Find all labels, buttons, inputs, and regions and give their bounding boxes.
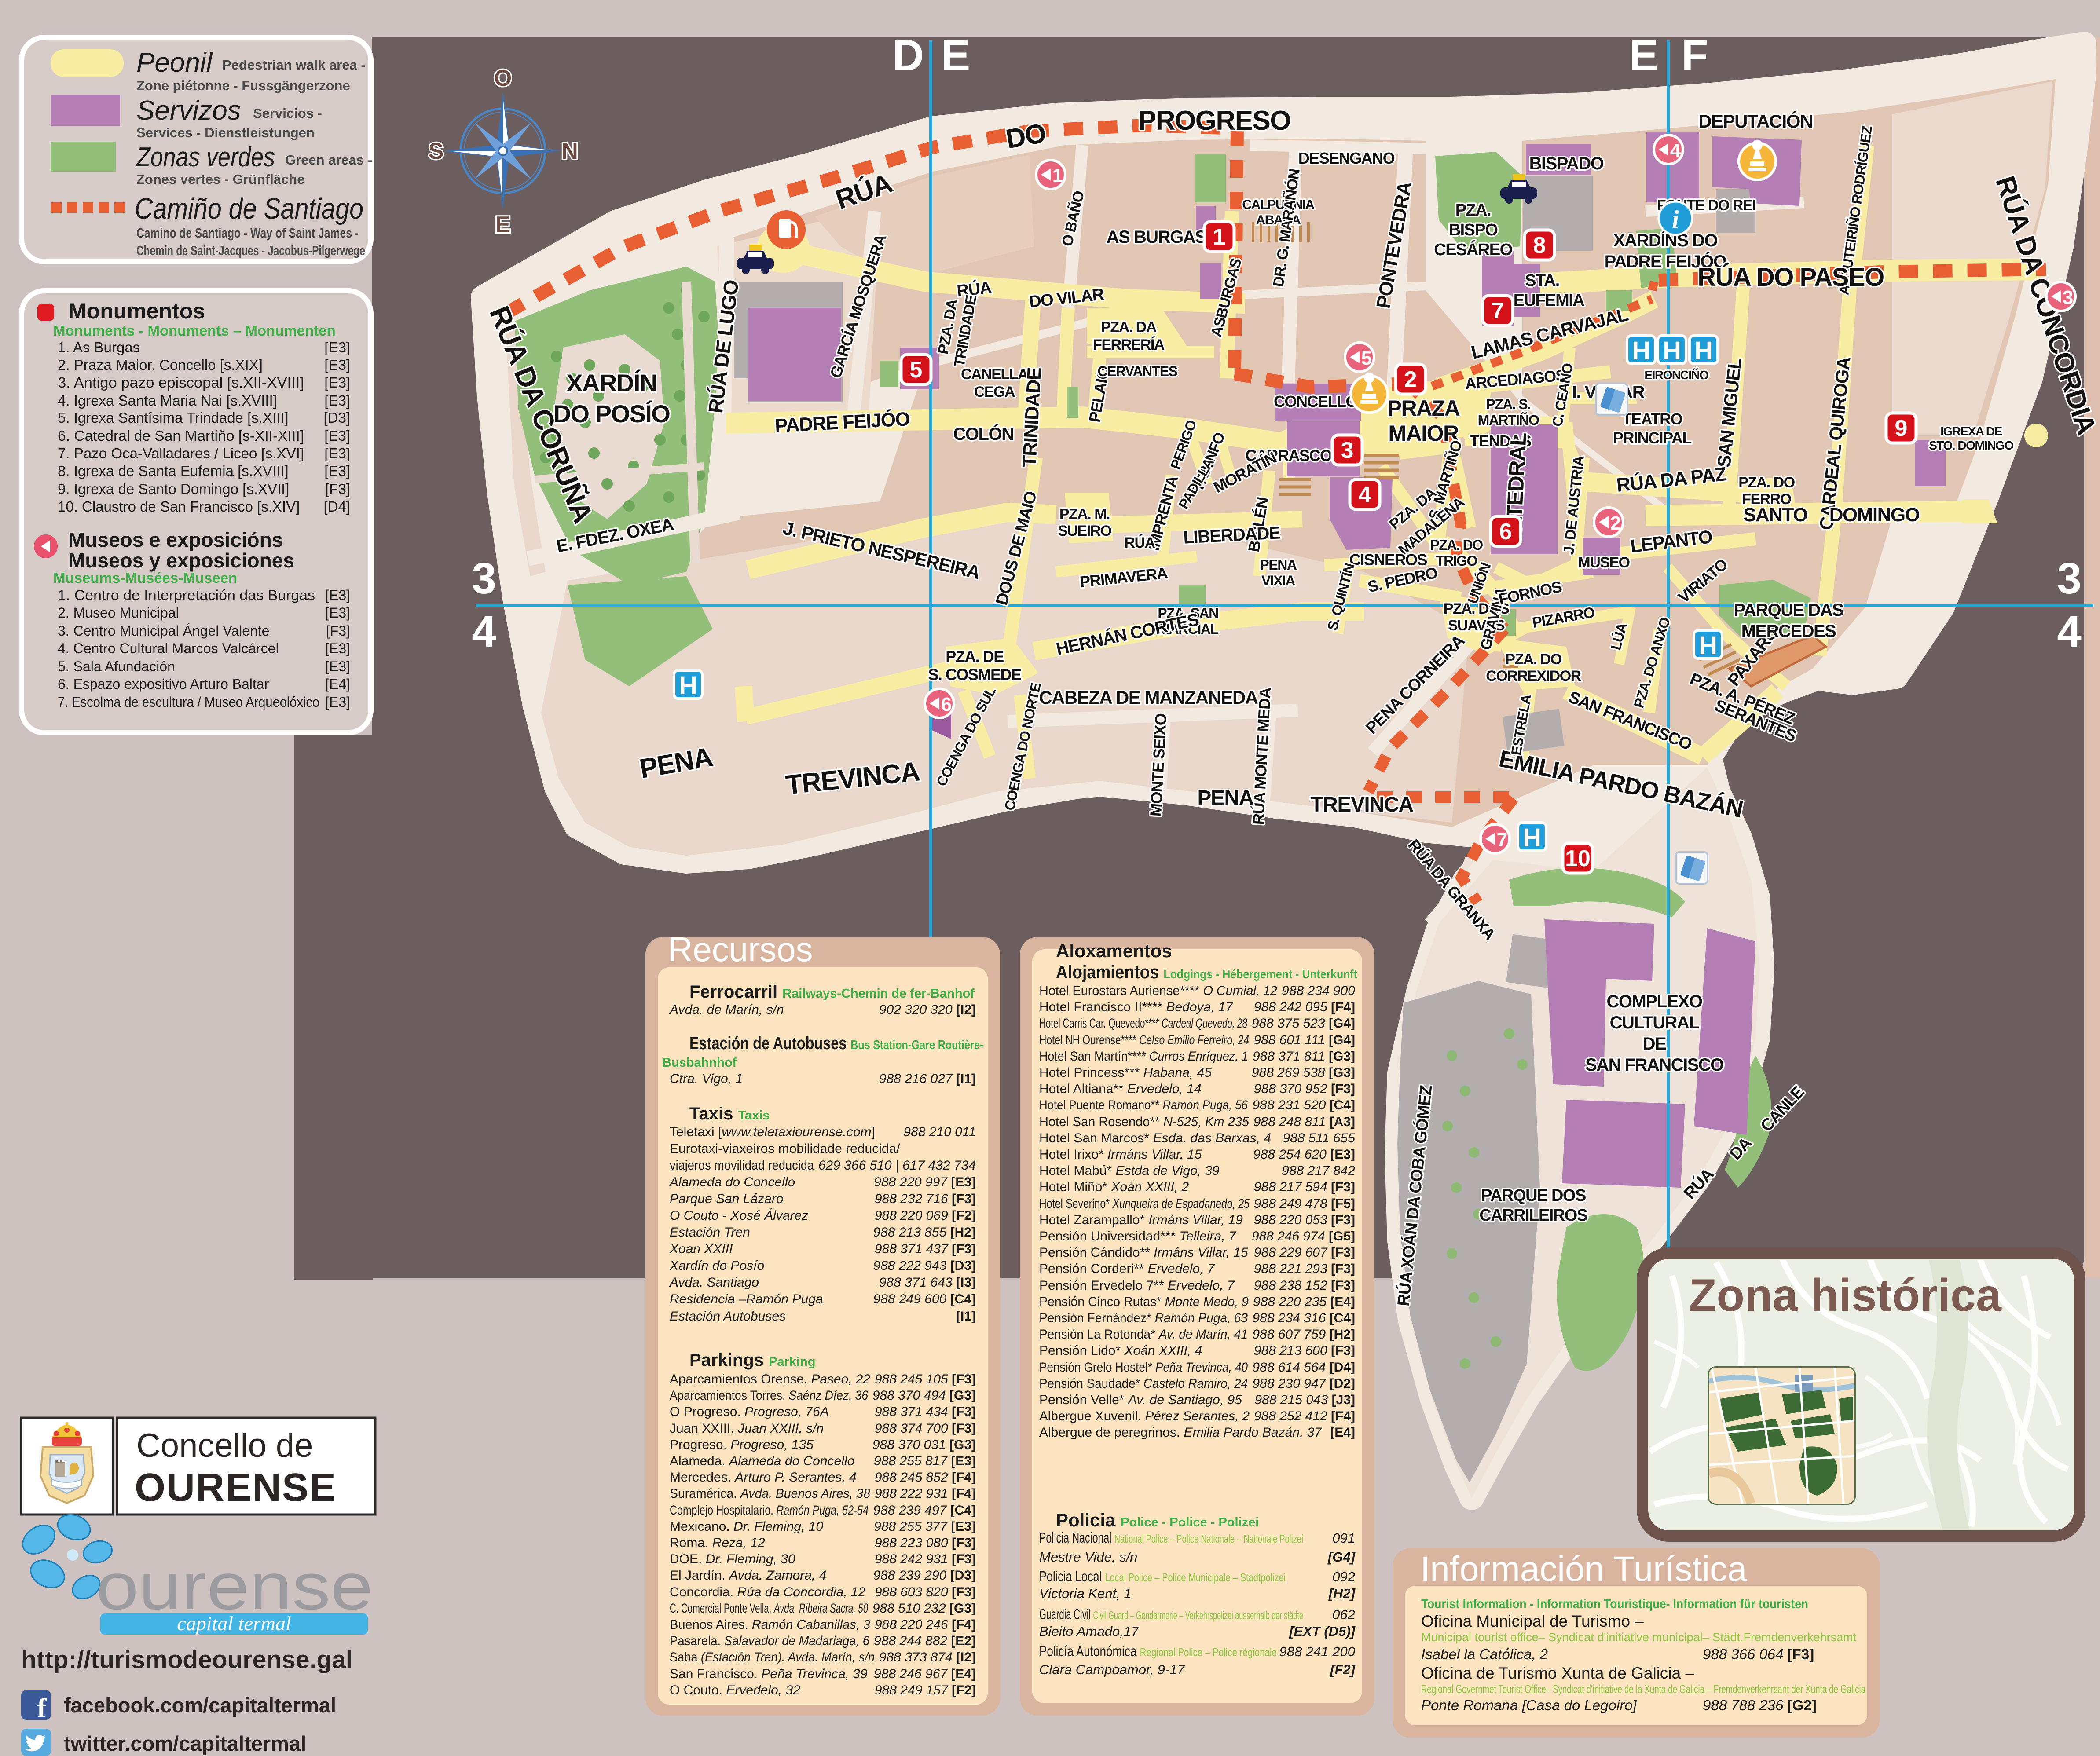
- svg-text:Servizos: Servizos: [136, 95, 241, 126]
- svg-text:2: 2: [1404, 367, 1417, 392]
- svg-text:Progreso. Progreso, 135: Progreso. Progreso, 135: [670, 1438, 814, 1452]
- svg-text:CANELLA: CANELLA: [961, 366, 1028, 383]
- svg-text:988 255 817 [E3]: 988 255 817 [E3]: [874, 1454, 976, 1468]
- svg-text:988 242 931 [F3]: 988 242 931 [F3]: [875, 1552, 976, 1566]
- svg-text:Aparcamientos Torres. Saénz Dí: Aparcamientos Torres. Saénz Díez, 36: [670, 1388, 868, 1403]
- svg-text:E: E: [1629, 31, 1659, 80]
- svg-text:CARRILEIROS: CARRILEIROS: [1479, 1206, 1587, 1225]
- svg-text:PENA: PENA: [1260, 557, 1297, 573]
- svg-text:Información Turística: Información Turística: [1420, 1549, 1747, 1588]
- svg-text:MARTIÑO: MARTIÑO: [1478, 412, 1539, 428]
- svg-text:CISNEROS: CISNEROS: [1349, 551, 1427, 569]
- svg-text:Pedestrian walk area -: Pedestrian walk area -: [222, 57, 366, 73]
- svg-text:988 249 157 [F2]: 988 249 157 [F2]: [875, 1683, 976, 1697]
- svg-text:Hotel Miño* Xoán XXIII, 2: Hotel Miño* Xoán XXIII, 2: [1039, 1180, 1189, 1194]
- svg-text:Saba (Estación Tren). Avda. Ma: Saba (Estación Tren). Avda. Marín, s/n: [670, 1650, 875, 1665]
- svg-text:Pasarela. Salavador de Madaria: Pasarela. Salavador de Madariaga, 6: [670, 1634, 869, 1648]
- svg-text:Hotel Altiana** Ervedelo, 14: Hotel Altiana** Ervedelo, 14: [1039, 1082, 1202, 1096]
- svg-text:O Progreso. Progreso, 76A: O Progreso. Progreso, 76A: [670, 1405, 829, 1419]
- svg-text:9. Igrexa de Santo Domingo [s.: 9. Igrexa de Santo Domingo [s.XVII]: [58, 481, 289, 497]
- svg-text:1: 1: [1052, 165, 1063, 187]
- svg-text:EIRONCIÑO: EIRONCIÑO: [1644, 368, 1708, 382]
- svg-text:062: 062: [1332, 1607, 1355, 1622]
- svg-text:[I1]: [I1]: [956, 1309, 976, 1324]
- svg-text:XARDÍN: XARDÍN: [566, 369, 657, 397]
- svg-text:Pensión Universidad*** Telleir: Pensión Universidad*** Telleira, 7: [1039, 1229, 1237, 1244]
- svg-text:SUEIRO: SUEIRO: [1058, 523, 1111, 539]
- svg-text:988 238 152 [F3]: 988 238 152 [F3]: [1254, 1278, 1355, 1293]
- svg-text:DO POSÍO: DO POSÍO: [553, 400, 670, 428]
- svg-text:7: 7: [1497, 829, 1507, 851]
- svg-text:Pensión Corderi** Ervedelo, 7: Pensión Corderi** Ervedelo, 7: [1039, 1262, 1215, 1276]
- svg-text:988 370 031 [G3]: 988 370 031 [G3]: [872, 1438, 976, 1452]
- svg-text:Guardia Civil Civil Guard – Ge: Guardia Civil Civil Guard – Gendarmerie …: [1039, 1606, 1303, 1622]
- svg-text:Oficina Municipal de Turismo –: Oficina Municipal de Turismo –: [1421, 1612, 1644, 1630]
- svg-text:Peonil: Peonil: [136, 48, 213, 78]
- svg-text:Chemin de Saint-Jacques - Jaco: Chemin de Saint-Jacques - Jacobus-Pilger…: [136, 243, 365, 258]
- svg-text:BISPADO: BISPADO: [1529, 154, 1604, 173]
- svg-text:988 366 064 [F3]: 988 366 064 [F3]: [1703, 1646, 1814, 1662]
- svg-text:f: f: [37, 1694, 47, 1723]
- svg-text:5. Sala Afundación: 5. Sala Afundación: [58, 658, 175, 674]
- svg-text:PROGRESO: PROGRESO: [1138, 106, 1290, 136]
- svg-text:Eurotaxi-viaxeiros mobilidade: Eurotaxi-viaxeiros mobilidade reducida/: [670, 1141, 900, 1156]
- svg-text:STO. DOMINGO: STO. DOMINGO: [1929, 439, 2013, 452]
- svg-text:TRIGO: TRIGO: [1436, 553, 1477, 569]
- svg-text:Pensión Cándido** Irmáns Villa: Pensión Cándido** Irmáns Villar, 15: [1039, 1245, 1248, 1260]
- svg-text:988 234 316 [C4]: 988 234 316 [C4]: [1252, 1311, 1355, 1325]
- svg-text:Pensión Cinco Rutas* Monte Med: Pensión Cinco Rutas* Monte Medo, 9: [1039, 1295, 1249, 1309]
- svg-text:988 229 607 [F3]: 988 229 607 [F3]: [1254, 1245, 1355, 1260]
- svg-text:Roma. Reza, 12: Roma. Reza, 12: [670, 1536, 765, 1550]
- svg-text:Zona histórica: Zona histórica: [1689, 1270, 2002, 1321]
- svg-text:Albergue Xuvenil. Pérez Serant: Albergue Xuvenil. Pérez Serantes, 2: [1039, 1409, 1250, 1423]
- svg-text:D: D: [892, 31, 924, 80]
- svg-text:Aloxamentos: Aloxamentos: [1056, 940, 1172, 961]
- svg-text:[EXT (D5)]: [EXT (D5)]: [1289, 1624, 1356, 1639]
- svg-text:[D3]: [D3]: [323, 410, 350, 426]
- svg-text:Regional Governmet Tourist Off: Regional Governmet Tourist Office– Syndi…: [1421, 1683, 1866, 1696]
- svg-text:Complejo Hospitalario. Ramón P: Complejo Hospitalario. Ramón Puga, 52-54: [670, 1503, 869, 1518]
- svg-text:10. Claustro de San Francisco: 10. Claustro de San Francisco [s.XIV]: [58, 498, 300, 515]
- svg-text:1: 1: [1213, 224, 1226, 250]
- svg-text:988 246 967 [E4]: 988 246 967 [E4]: [874, 1667, 976, 1681]
- svg-text:6: 6: [941, 694, 952, 715]
- svg-text:988 220 053 [F3]: 988 220 053 [F3]: [1254, 1213, 1355, 1227]
- svg-text:3: 3: [1341, 438, 1354, 463]
- svg-text:6. Espazo expositivo Arturo Ba: 6. Espazo expositivo Arturo Baltar: [58, 676, 269, 692]
- svg-text:FERRERÍA: FERRERÍA: [1093, 337, 1165, 353]
- svg-text:facebook.com/capitaltermal: facebook.com/capitaltermal: [64, 1694, 336, 1717]
- svg-text:[F3]: [F3]: [326, 623, 350, 639]
- svg-text:CORREXIDOR: CORREXIDOR: [1486, 668, 1581, 684]
- svg-text:CABEZA DE MANZANEDA: CABEZA DE MANZANEDA: [1039, 687, 1258, 708]
- svg-text:Xardín do Posío: Xardín do Posío: [669, 1258, 764, 1273]
- svg-text:PARQUE DOS: PARQUE DOS: [1481, 1186, 1586, 1205]
- svg-text:[D4]: [D4]: [323, 498, 350, 515]
- svg-text:Pensión Lido* Xoán XXIII, 4: Pensión Lido* Xoán XXIII, 4: [1039, 1343, 1202, 1358]
- svg-text:988 269 538 [G3]: 988 269 538 [G3]: [1252, 1065, 1355, 1080]
- svg-text:4: 4: [2057, 607, 2082, 656]
- svg-text:[E3]: [E3]: [325, 587, 350, 603]
- svg-text:988 249 600 [C4]: 988 249 600 [C4]: [873, 1292, 976, 1306]
- svg-text:[F2]: [F2]: [1330, 1662, 1356, 1677]
- svg-text:E: E: [495, 212, 511, 238]
- svg-text:988 239 497 [C4]: 988 239 497 [C4]: [873, 1503, 976, 1518]
- svg-text:CEGA: CEGA: [974, 384, 1015, 400]
- svg-text:VIXIA: VIXIA: [1261, 573, 1295, 589]
- svg-text:Pensión Fernández* Ramón Puga,: Pensión Fernández* Ramón Puga, 63: [1039, 1311, 1248, 1325]
- svg-text:PZA. DO: PZA. DO: [1505, 651, 1561, 668]
- svg-text:3. Centro Municipal Ángel Vale: 3. Centro Municipal Ángel Valente: [58, 623, 269, 639]
- svg-text:BISPO: BISPO: [1449, 221, 1498, 239]
- svg-text:988 249 478 [F5]: 988 249 478 [F5]: [1254, 1196, 1355, 1211]
- svg-text:Hotel Severino* Xunqueira de E: Hotel Severino* Xunqueira de Espadanedo,…: [1039, 1196, 1250, 1211]
- svg-text:902 320 320 [I2]: 902 320 320 [I2]: [879, 1002, 976, 1017]
- svg-text:[E3]: [E3]: [324, 445, 350, 461]
- svg-text:Avda. Santiago: Avda. Santiago: [669, 1275, 759, 1290]
- svg-text:twitter.com/capitaltermal: twitter.com/capitaltermal: [64, 1732, 306, 1755]
- svg-text:PRINCIPAL: PRINCIPAL: [1613, 429, 1691, 447]
- svg-text:2: 2: [1610, 512, 1621, 534]
- svg-text:988 230 947 [D2]: 988 230 947 [D2]: [1252, 1376, 1355, 1391]
- svg-text:988 246 974 [G5]: 988 246 974 [G5]: [1252, 1229, 1355, 1244]
- svg-text:PRAZA: PRAZA: [1387, 396, 1460, 421]
- svg-text:DOMINGO: DOMINGO: [1829, 504, 1920, 526]
- svg-text:988 239 290 [D3]: 988 239 290 [D3]: [873, 1568, 976, 1583]
- svg-text:[E3]: [E3]: [325, 658, 350, 674]
- svg-text:3. Antigo pazo episcopal [s.XI: 3. Antigo pazo episcopal [s.XII-XVIII]: [58, 374, 304, 391]
- svg-text:988 603 820 [F3]: 988 603 820 [F3]: [875, 1585, 976, 1599]
- svg-text:Hotel San Marcos* Esda. das Ba: Hotel San Marcos* Esda. das Barxas, 4: [1039, 1131, 1271, 1145]
- svg-text:988 213 600 [F3]: 988 213 600 [F3]: [1254, 1343, 1355, 1358]
- svg-text:988 370 952 [F3]: 988 370 952 [F3]: [1254, 1082, 1355, 1096]
- svg-text:RÚA: RÚA: [1124, 534, 1155, 551]
- svg-text:9: 9: [1895, 416, 1908, 441]
- svg-text:Hotel San Rosendo** N-525, Km: Hotel San Rosendo** N-525, Km 235: [1039, 1115, 1249, 1129]
- svg-text:San Francisco. Peña Trevinca,: San Francisco. Peña Trevinca, 39: [670, 1667, 868, 1681]
- svg-text:3: 3: [2057, 554, 2082, 603]
- svg-text:PZA. DA: PZA. DA: [1101, 319, 1156, 336]
- svg-text:OURENSE: OURENSE: [135, 1466, 337, 1510]
- svg-text:Avda. de Marín, s/n: Avda. de Marín, s/n: [669, 1002, 784, 1017]
- svg-text:988 245 105 [F3]: 988 245 105 [F3]: [875, 1372, 976, 1387]
- svg-text:DE: DE: [1643, 1034, 1666, 1054]
- svg-text:Hotel Irixo* Irmáns Villar, 15: Hotel Irixo* Irmáns Villar, 15: [1039, 1147, 1202, 1162]
- svg-text:PZA. DE: PZA. DE: [946, 648, 1004, 666]
- svg-text:7. Pazo Oca-Valladares / Liceo: 7. Pazo Oca-Valladares / Liceo [s.XVI]: [58, 445, 304, 461]
- svg-text:[E3]: [E3]: [324, 428, 350, 444]
- svg-text:7: 7: [1492, 298, 1504, 324]
- svg-text:092: 092: [1332, 1569, 1355, 1584]
- svg-text:Hotel Eurostars Auriense**** O: Hotel Eurostars Auriense**** O Cumial, 1…: [1039, 984, 1277, 998]
- svg-text:viajeros movilidad reducida: viajeros movilidad reducida: [670, 1158, 814, 1173]
- svg-text:Pensión Velle* Av. de Santiago: Pensión Velle* Av. de Santiago, 95: [1039, 1393, 1242, 1407]
- svg-text:988 215 043 [J3]: 988 215 043 [J3]: [1254, 1393, 1355, 1407]
- svg-text:Victoria Kent, 1: Victoria Kent, 1: [1039, 1586, 1132, 1601]
- svg-text:Policia Local Local Police – P: Policia Local Local Police – Police Muni…: [1039, 1568, 1286, 1584]
- svg-text:988 244 882 [E2]: 988 244 882 [E2]: [874, 1634, 976, 1648]
- svg-text:O Couto. Ervedelo, 32: O Couto. Ervedelo, 32: [670, 1683, 800, 1697]
- svg-text:Hotel San Martín**** Curros En: Hotel San Martín**** Curros Enríquez, 1: [1039, 1049, 1248, 1064]
- svg-text:Pensión Ervedelo 7** Ervedelo,: Pensión Ervedelo 7** Ervedelo, 7: [1039, 1278, 1235, 1293]
- svg-text:988 234 900: 988 234 900: [1282, 984, 1355, 998]
- svg-text:F: F: [1681, 31, 1708, 80]
- svg-text:Buenos Aires. Ramón Cabanillas: Buenos Aires. Ramón Cabanillas, 3: [670, 1617, 870, 1632]
- svg-text:DOE. Dr. Fleming, 30: DOE. Dr. Fleming, 30: [670, 1552, 795, 1566]
- svg-text:4: 4: [1670, 140, 1681, 161]
- svg-text:PZA. DO: PZA. DO: [1430, 537, 1483, 553]
- svg-text:CESÁREO: CESÁREO: [1434, 240, 1512, 259]
- svg-text:4: 4: [1359, 482, 1371, 508]
- svg-text:988 373 874 [I2]: 988 373 874 [I2]: [879, 1650, 976, 1665]
- svg-text:E: E: [941, 31, 971, 80]
- svg-text:PZA. S.: PZA. S.: [1486, 396, 1531, 412]
- svg-text:Servicios -: Servicios -: [253, 106, 322, 121]
- svg-text:Alameda do Concello: Alameda do Concello: [669, 1175, 795, 1189]
- svg-text:988 248 811 [A3]: 988 248 811 [A3]: [1253, 1115, 1355, 1129]
- svg-text:988 255 377 [E3]: 988 255 377 [E3]: [874, 1519, 976, 1534]
- svg-text:091: 091: [1332, 1530, 1355, 1546]
- svg-text:Bieito Amado,17: Bieito Amado,17: [1039, 1624, 1140, 1639]
- svg-text:988 375 523 [G4]: 988 375 523 [G4]: [1252, 1016, 1355, 1031]
- svg-text:IGREXA DE: IGREXA DE: [1940, 424, 2002, 438]
- svg-text:988 601 111 [G4]: 988 601 111 [G4]: [1253, 1033, 1355, 1047]
- svg-text:DESENGANO: DESENGANO: [1298, 149, 1395, 167]
- svg-text:TEATRO: TEATRO: [1622, 410, 1682, 428]
- svg-text:Hotel Princess*** Habana, 45: Hotel Princess*** Habana, 45: [1039, 1065, 1212, 1080]
- svg-text:S: S: [429, 139, 444, 164]
- svg-text:SAN FRANCISCO: SAN FRANCISCO: [1585, 1055, 1723, 1075]
- svg-text:988 220 235 [E4]: 988 220 235 [E4]: [1253, 1295, 1355, 1309]
- svg-text:O Couto - Xosé Álvarez: O Couto - Xosé Álvarez: [670, 1208, 808, 1223]
- svg-text:S. COSMEDE: S. COSMEDE: [928, 666, 1021, 684]
- svg-text:4. Igrexa Santa Maria Nai [s.X: 4. Igrexa Santa Maria Nai [s.XVIII]: [58, 392, 277, 409]
- svg-text:N: N: [561, 139, 578, 164]
- svg-text:Recursos: Recursos: [668, 930, 813, 969]
- svg-text:CONCELLO: CONCELLO: [1274, 392, 1357, 410]
- svg-text:5: 5: [910, 357, 923, 383]
- svg-text:XARDÍNS DO: XARDÍNS DO: [1613, 230, 1718, 250]
- svg-text:Green areas -: Green areas -: [285, 152, 372, 168]
- svg-text:7. Escolma de escultura / Muse: 7. Escolma de escultura / Museo Arqueoló…: [58, 694, 319, 710]
- svg-text:PZA. M.: PZA. M.: [1059, 506, 1110, 523]
- svg-text:Tourist Information - Informat: Tourist Information - Information Touris…: [1421, 1597, 1808, 1611]
- svg-text:988 788 236 [G2]: 988 788 236 [G2]: [1703, 1697, 1817, 1713]
- svg-text:988 374 700 [F3]: 988 374 700 [F3]: [875, 1421, 976, 1436]
- svg-text:4: 4: [472, 607, 496, 656]
- svg-text:EUFEMIA: EUFEMIA: [1514, 291, 1585, 310]
- svg-text:Hotel Carris Car. Quevedo****: Hotel Carris Car. Quevedo**** Cardeal Qu…: [1039, 1016, 1247, 1031]
- svg-text:AS BURGAS: AS BURGAS: [1107, 227, 1206, 247]
- svg-text:Aparcamientos Orense. Paseo, 2: Aparcamientos Orense. Paseo, 22: [670, 1372, 870, 1387]
- svg-text:988 614 564 [D4]: 988 614 564 [D4]: [1252, 1360, 1355, 1375]
- svg-text:[G4]: [G4]: [1327, 1549, 1356, 1565]
- svg-text:2. Praza Maior. Concello [s.XI: 2. Praza Maior. Concello [s.XIX]: [58, 357, 263, 373]
- svg-text:STA.: STA.: [1525, 271, 1559, 290]
- svg-text:Camino de Santiago - Way of Sa: Camino de Santiago - Way of Saint James …: [136, 225, 359, 241]
- svg-text:TREVINCA: TREVINCA: [1310, 793, 1413, 816]
- svg-text:PZA. DO: PZA. DO: [1738, 474, 1795, 491]
- svg-text:C. Comercial Ponte Vella. Avda: C. Comercial Ponte Vella. Avda. Ribeira …: [670, 1601, 868, 1616]
- svg-text:8. Igrexa de Santa Eufemia [s.: 8. Igrexa de Santa Eufemia [s.XVIII]: [58, 463, 289, 479]
- svg-text:5. Igrexa Santísima Trindade [: 5. Igrexa Santísima Trindade [s.XIII]: [58, 410, 289, 426]
- svg-text:MERCEDES: MERCEDES: [1741, 622, 1836, 641]
- svg-text:988 220 246 [F4]: 988 220 246 [F4]: [875, 1617, 976, 1632]
- svg-text:988 231 520 [C4]: 988 231 520 [C4]: [1252, 1098, 1355, 1112]
- svg-text:988 371 437 [F3]: 988 371 437 [F3]: [875, 1242, 976, 1256]
- svg-text:RÚA DO PASEO: RÚA DO PASEO: [1697, 263, 1884, 292]
- svg-text:Albergue de peregrinos. Emilia: Albergue de peregrinos. Emilia Pardo Baz…: [1039, 1425, 1322, 1440]
- svg-text:Museums-Musées-Museen: Museums-Musées-Museen: [53, 570, 237, 586]
- svg-text:Monumentos: Monumentos: [68, 299, 205, 323]
- svg-text:i: i: [1672, 205, 1679, 234]
- svg-text:[E3]: [E3]: [325, 694, 350, 710]
- svg-text:Oficina de Turismo Xunta de Ga: Oficina de Turismo Xunta de Galicia –: [1421, 1664, 1695, 1682]
- svg-text:Teletaxi [www.teletaxiourense.: Teletaxi [www.teletaxiourense.com]: [670, 1125, 875, 1139]
- svg-text:[E3]: [E3]: [325, 605, 350, 621]
- svg-text:988 217 842: 988 217 842: [1282, 1163, 1355, 1178]
- svg-text:988 220 069 [F2]: 988 220 069 [F2]: [875, 1208, 976, 1223]
- svg-text:3: 3: [472, 554, 496, 603]
- svg-text:988 371 434 [F3]: 988 371 434 [F3]: [875, 1405, 976, 1419]
- svg-text:988 371 643 [I3]: 988 371 643 [I3]: [879, 1275, 976, 1290]
- svg-text:Hotel Puente Romano** Ramón Pu: Hotel Puente Romano** Ramón Puga, 56: [1039, 1098, 1248, 1112]
- svg-text:5: 5: [1361, 348, 1372, 369]
- svg-text:4. Centro Cultural Marcos Valc: 4. Centro Cultural Marcos Valcárcel: [58, 640, 279, 656]
- svg-text:[E3]: [E3]: [324, 357, 350, 373]
- svg-text:988 245 852 [F4]: 988 245 852 [F4]: [875, 1470, 976, 1485]
- svg-text:[E4]: [E4]: [1330, 1425, 1355, 1440]
- svg-text:988 220 997 [E3]: 988 220 997 [E3]: [874, 1175, 976, 1189]
- svg-text:PENA: PENA: [1197, 787, 1253, 810]
- svg-text:988 221 293 [F3]: 988 221 293 [F3]: [1254, 1262, 1355, 1276]
- svg-text:6. Catedral de San Martiño [s-: 6. Catedral de San Martiño [s-XII-XIII]: [58, 428, 304, 444]
- svg-text:http://turismodeourense.gal: http://turismodeourense.gal: [21, 1646, 353, 1674]
- svg-text:Mexicano. Dr. Fleming, 10: Mexicano. Dr. Fleming, 10: [670, 1519, 823, 1534]
- svg-text:988 242 095 [F4]: 988 242 095 [F4]: [1254, 1000, 1355, 1014]
- svg-text:988 216 027 [I1]: 988 216 027 [I1]: [879, 1072, 976, 1086]
- svg-text:COMPLEXO: COMPLEXO: [1607, 992, 1702, 1011]
- svg-text:Concello de: Concello de: [136, 1427, 313, 1464]
- svg-text:988 510 232 [G3]: 988 510 232 [G3]: [872, 1601, 976, 1616]
- svg-text:988 222 931 [F4]: 988 222 931 [F4]: [875, 1486, 976, 1501]
- svg-text:CERVANTES: CERVANTES: [1098, 363, 1178, 379]
- svg-text:Services - Dienstleistungen: Services - Dienstleistungen: [136, 125, 315, 140]
- svg-text:PZA.: PZA.: [1455, 201, 1491, 219]
- svg-text:2. Museo Municipal: 2. Museo Municipal: [58, 605, 179, 621]
- svg-text:988 254 620 [E3]: 988 254 620 [E3]: [1253, 1147, 1355, 1162]
- svg-text:988 252 412 [F4]: 988 252 412 [F4]: [1254, 1409, 1355, 1423]
- svg-text:Pensión Grelo Hostel* Peña Tre: Pensión Grelo Hostel* Peña Trevinca, 40: [1039, 1360, 1248, 1375]
- svg-text:[F3]: [F3]: [325, 481, 350, 497]
- svg-text:Hotel Francisco II**** Bedoya,: Hotel Francisco II**** Bedoya, 17: [1039, 1000, 1234, 1014]
- svg-text:Museos y exposiciones: Museos y exposiciones: [68, 549, 294, 572]
- svg-text:Parque San Lázaro: Parque San Lázaro: [670, 1192, 784, 1206]
- svg-text:Residencia –Ramón Puga: Residencia –Ramón Puga: [670, 1292, 823, 1306]
- svg-text:PARQUE DAS: PARQUE DAS: [1734, 600, 1844, 620]
- svg-text:Mestre Vide, s/n: Mestre Vide, s/n: [1039, 1549, 1137, 1565]
- svg-text:[E3]: [E3]: [324, 392, 350, 409]
- svg-text:[E3]: [E3]: [324, 463, 350, 479]
- svg-text:988 210 011: 988 210 011: [903, 1125, 976, 1139]
- svg-text:COLÓN: COLÓN: [953, 424, 1014, 444]
- svg-text:988 607 759 [H2]: 988 607 759 [H2]: [1252, 1327, 1355, 1342]
- svg-text:Juan XXIII. Juan XXIII, s/n: Juan XXIII. Juan XXIII, s/n: [670, 1421, 824, 1436]
- svg-text:Concordia. Rúa da Concordia, 1: Concordia. Rúa da Concordia, 12: [670, 1585, 866, 1599]
- svg-text:[E3]: [E3]: [325, 640, 350, 656]
- svg-text:Museos e exposicións: Museos e exposicións: [68, 528, 283, 551]
- svg-text:988 217 594 [F3]: 988 217 594 [F3]: [1254, 1180, 1355, 1194]
- svg-text:10: 10: [1565, 846, 1591, 871]
- svg-text:1. Centro de Interpretación da: 1. Centro de Interpretación das Burgas: [58, 587, 315, 603]
- svg-text:988 213 855 [H2]: 988 213 855 [H2]: [873, 1225, 976, 1240]
- svg-text:Hotel Zarampallo* Irmáns Villa: Hotel Zarampallo* Irmáns Villar, 19: [1039, 1213, 1243, 1227]
- svg-text:988 222 943 [D3]: 988 222 943 [D3]: [873, 1258, 976, 1273]
- svg-text:Monuments - Monuments – Monume: Monuments - Monuments – Monumenten: [53, 322, 336, 339]
- svg-text:capital termal: capital termal: [177, 1612, 291, 1635]
- svg-text:O: O: [494, 66, 512, 91]
- svg-text:Suramérica. Avda. Buenos Aires: Suramérica. Avda. Buenos Aires, 38: [670, 1486, 870, 1501]
- svg-text:Zonas verdes: Zonas verdes: [136, 142, 275, 172]
- svg-text:Zone piétonne - Fussgängerzone: Zone piétonne - Fussgängerzone: [136, 78, 350, 93]
- svg-text:8: 8: [1533, 233, 1546, 258]
- svg-text:Hotel Mabú* Estda de Vigo, 39: Hotel Mabú* Estda de Vigo, 39: [1039, 1163, 1220, 1178]
- svg-text:Zones vertes - Grünfläche: Zones vertes - Grünfläche: [136, 172, 304, 187]
- svg-text:6: 6: [1499, 519, 1512, 545]
- svg-text:Ponte Romana [Casa do Legoiro]: Ponte Romana [Casa do Legoiro]: [1421, 1697, 1637, 1713]
- svg-text:CULTURAL: CULTURAL: [1610, 1013, 1700, 1032]
- svg-text:Pensión Saudade* Castelo Ramir: Pensión Saudade* Castelo Ramiro, 24: [1039, 1376, 1248, 1391]
- svg-text:Policia Nacional National Poli: Policia Nacional National Police – Polic…: [1039, 1529, 1303, 1546]
- svg-text:Clara Campoamor, 9-17: Clara Campoamor, 9-17: [1039, 1662, 1186, 1677]
- svg-text:Busbahnhof: Busbahnhof: [662, 1056, 737, 1070]
- svg-text:1. As Burgas: 1. As Burgas: [58, 339, 140, 355]
- svg-text:988 370 494 [G3]: 988 370 494 [G3]: [872, 1388, 976, 1403]
- svg-text:Hotel NH Ourense**** Celso Emi: Hotel NH Ourense**** Celso Emilio Ferrei…: [1039, 1033, 1249, 1047]
- svg-text:Mercedes. Arturo P. Serantes,: Mercedes. Arturo P. Serantes, 4: [670, 1470, 857, 1485]
- svg-text:Camiño de Santiago: Camiño de Santiago: [135, 192, 363, 225]
- svg-text:Xoan XXIII: Xoan XXIII: [669, 1242, 733, 1256]
- svg-text:FERRO: FERRO: [1742, 491, 1792, 508]
- svg-text:[E3]: [E3]: [324, 339, 350, 355]
- svg-text:[E3]: [E3]: [324, 374, 350, 391]
- svg-text:Estación Autobuses: Estación Autobuses: [670, 1309, 786, 1324]
- svg-text:Alameda. Alameda do Concello: Alameda. Alameda do Concello: [670, 1454, 854, 1468]
- svg-text:988 223 080 [F3]: 988 223 080 [F3]: [875, 1536, 976, 1550]
- svg-text:988 241 200: 988 241 200: [1279, 1644, 1355, 1659]
- svg-text:[E4]: [E4]: [325, 676, 350, 692]
- svg-text:Policía Autonómica Regional Po: Policía Autonómica Regional Police – Pol…: [1039, 1643, 1277, 1659]
- svg-text:MUSEO: MUSEO: [1578, 554, 1630, 571]
- svg-text:Ctra. Vigo, 1: Ctra. Vigo, 1: [670, 1072, 743, 1086]
- svg-text:Pensión La Rotonda* Av. de Mar: Pensión La Rotonda* Av. de Marín, 41: [1039, 1327, 1248, 1342]
- svg-text:El Jardín. Avda. Zamora, 4: El Jardín. Avda. Zamora, 4: [670, 1568, 826, 1583]
- svg-text:Estación Tren: Estación Tren: [670, 1225, 750, 1240]
- svg-text:988 511 655: 988 511 655: [1283, 1131, 1355, 1145]
- svg-text:CALPURNIA: CALPURNIA: [1242, 198, 1314, 212]
- svg-text:DEPUTACIÓN: DEPUTACIÓN: [1698, 110, 1813, 132]
- svg-text:3: 3: [2063, 287, 2073, 308]
- svg-text:629 366 510 | 617 432 734: 629 366 510 | 617 432 734: [818, 1158, 976, 1173]
- svg-text:Isabel la Católica, 2: Isabel la Católica, 2: [1421, 1646, 1548, 1662]
- svg-text:[H2]: [H2]: [1328, 1586, 1356, 1601]
- svg-text:988 232 716 [F3]: 988 232 716 [F3]: [875, 1192, 976, 1206]
- svg-text:Municipal tourist office– Synd: Municipal tourist office– Syndicat d'ini…: [1421, 1631, 1857, 1644]
- svg-text:988 371 811 [G3]: 988 371 811 [G3]: [1253, 1049, 1355, 1064]
